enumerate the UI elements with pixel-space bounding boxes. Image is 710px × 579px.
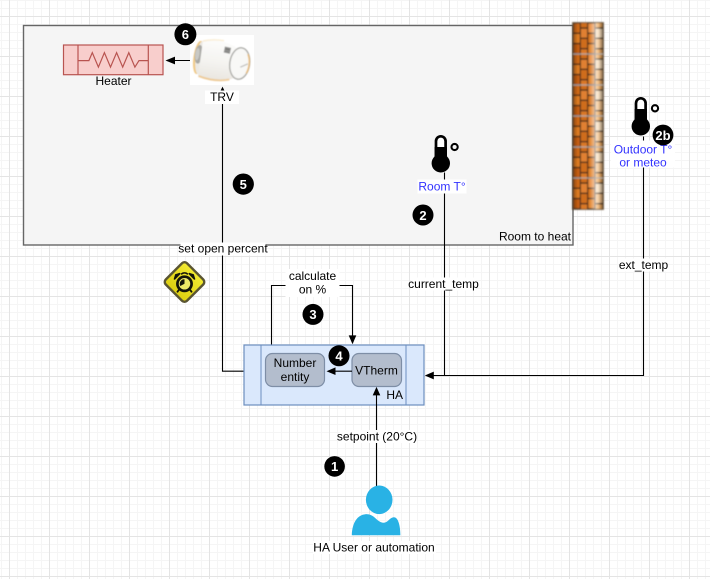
svg-text:HA User or automation: HA User or automation [313, 541, 434, 555]
svg-text:4: 4 [335, 349, 343, 364]
svg-text:TRV: TRV [210, 90, 234, 104]
svg-text:1: 1 [331, 459, 338, 474]
svg-text:calculate: calculate [289, 269, 337, 283]
svg-text:Room to heat: Room to heat [499, 230, 572, 244]
svg-text:VTherm: VTherm [355, 364, 398, 378]
svg-text:2: 2 [419, 208, 426, 223]
svg-text:Number: Number [274, 356, 317, 370]
svg-text:on %: on % [299, 283, 327, 297]
svg-text:5: 5 [240, 177, 247, 192]
svg-text:setpoint (20°C): setpoint (20°C) [337, 430, 417, 444]
svg-text:3: 3 [309, 307, 316, 322]
svg-text:ext_temp: ext_temp [619, 258, 669, 272]
svg-text:6: 6 [182, 27, 189, 42]
svg-text:HA: HA [386, 388, 403, 402]
svg-text:current_temp: current_temp [408, 277, 479, 291]
svg-text:or meteo: or meteo [619, 156, 667, 170]
svg-text:entity: entity [281, 370, 310, 384]
svg-text:Room T°: Room T° [418, 180, 465, 194]
svg-text:Heater: Heater [95, 74, 131, 88]
svg-text:2b: 2b [655, 128, 670, 143]
svg-text:set open percent: set open percent [178, 242, 268, 256]
